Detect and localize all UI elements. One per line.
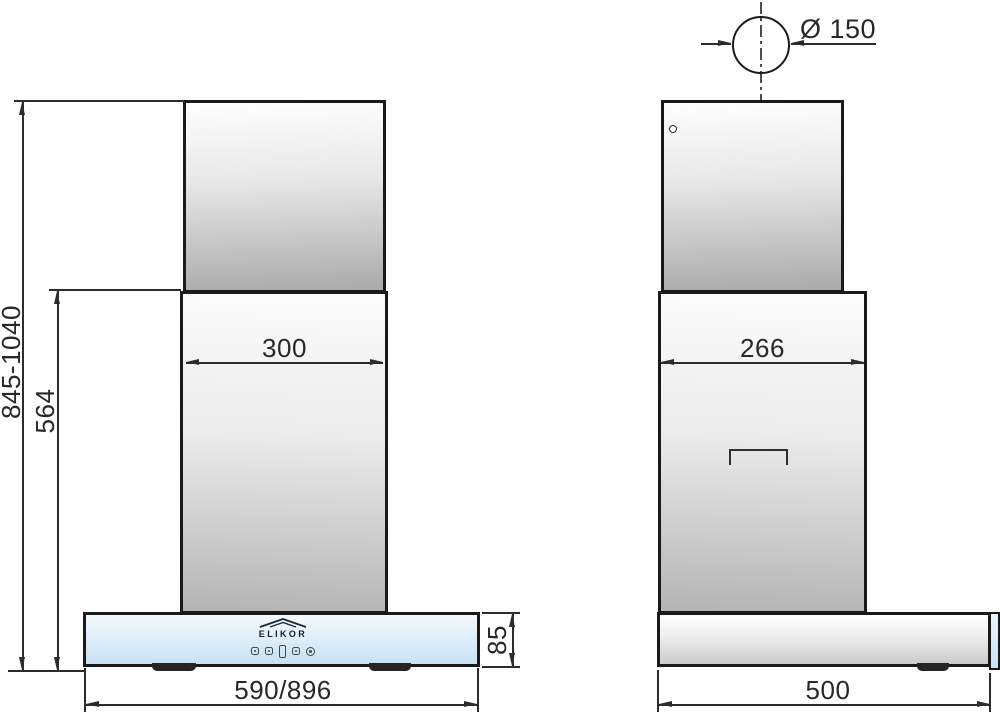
dim-duct-diameter-label: Ø 150 xyxy=(779,16,897,42)
screw-hole xyxy=(669,125,677,133)
control-button-icon xyxy=(265,647,273,655)
dim-chimney-width-label: 300 xyxy=(183,335,386,361)
dim-telescope-height-label: 564 xyxy=(32,361,58,461)
extension-line xyxy=(49,289,181,291)
display-icon xyxy=(279,645,286,658)
side-upper-chimney xyxy=(661,100,844,293)
light-button-icon xyxy=(306,647,315,656)
control-panel xyxy=(247,644,319,658)
elikor-logo-text: ELIKOR xyxy=(259,629,307,639)
side-hood-body xyxy=(657,612,991,667)
extension-line xyxy=(14,100,184,102)
dim-body-depth-label: 500 xyxy=(728,677,928,703)
control-button-icon xyxy=(251,647,259,655)
lamp-tab xyxy=(369,663,411,671)
dim-chimney-depth-label: 266 xyxy=(658,335,867,361)
elikor-roof-icon xyxy=(258,617,308,628)
lamp-tab xyxy=(917,663,949,671)
dim-body-height-line xyxy=(512,614,514,666)
front-upper-chimney xyxy=(183,100,386,293)
technical-drawing-canvas: ELIKOR 300 845-1040 564 85 590/896 xyxy=(0,0,1000,717)
elikor-logo: ELIKOR xyxy=(244,617,322,639)
extension-line xyxy=(8,670,86,672)
dim-body-width-label: 590/896 xyxy=(133,677,433,703)
dim-overall-height-label: 845-1040 xyxy=(0,272,24,452)
extension-line xyxy=(477,668,479,712)
dim-duct-diameter-line xyxy=(701,43,731,45)
dim-telescope-height-line xyxy=(57,291,59,670)
side-glass-front-strip xyxy=(989,612,1000,670)
control-button-icon xyxy=(292,647,300,655)
lamp-tab xyxy=(152,663,196,671)
mounting-bracket-mark xyxy=(729,449,788,465)
dim-body-height-label: 85 xyxy=(484,610,510,670)
